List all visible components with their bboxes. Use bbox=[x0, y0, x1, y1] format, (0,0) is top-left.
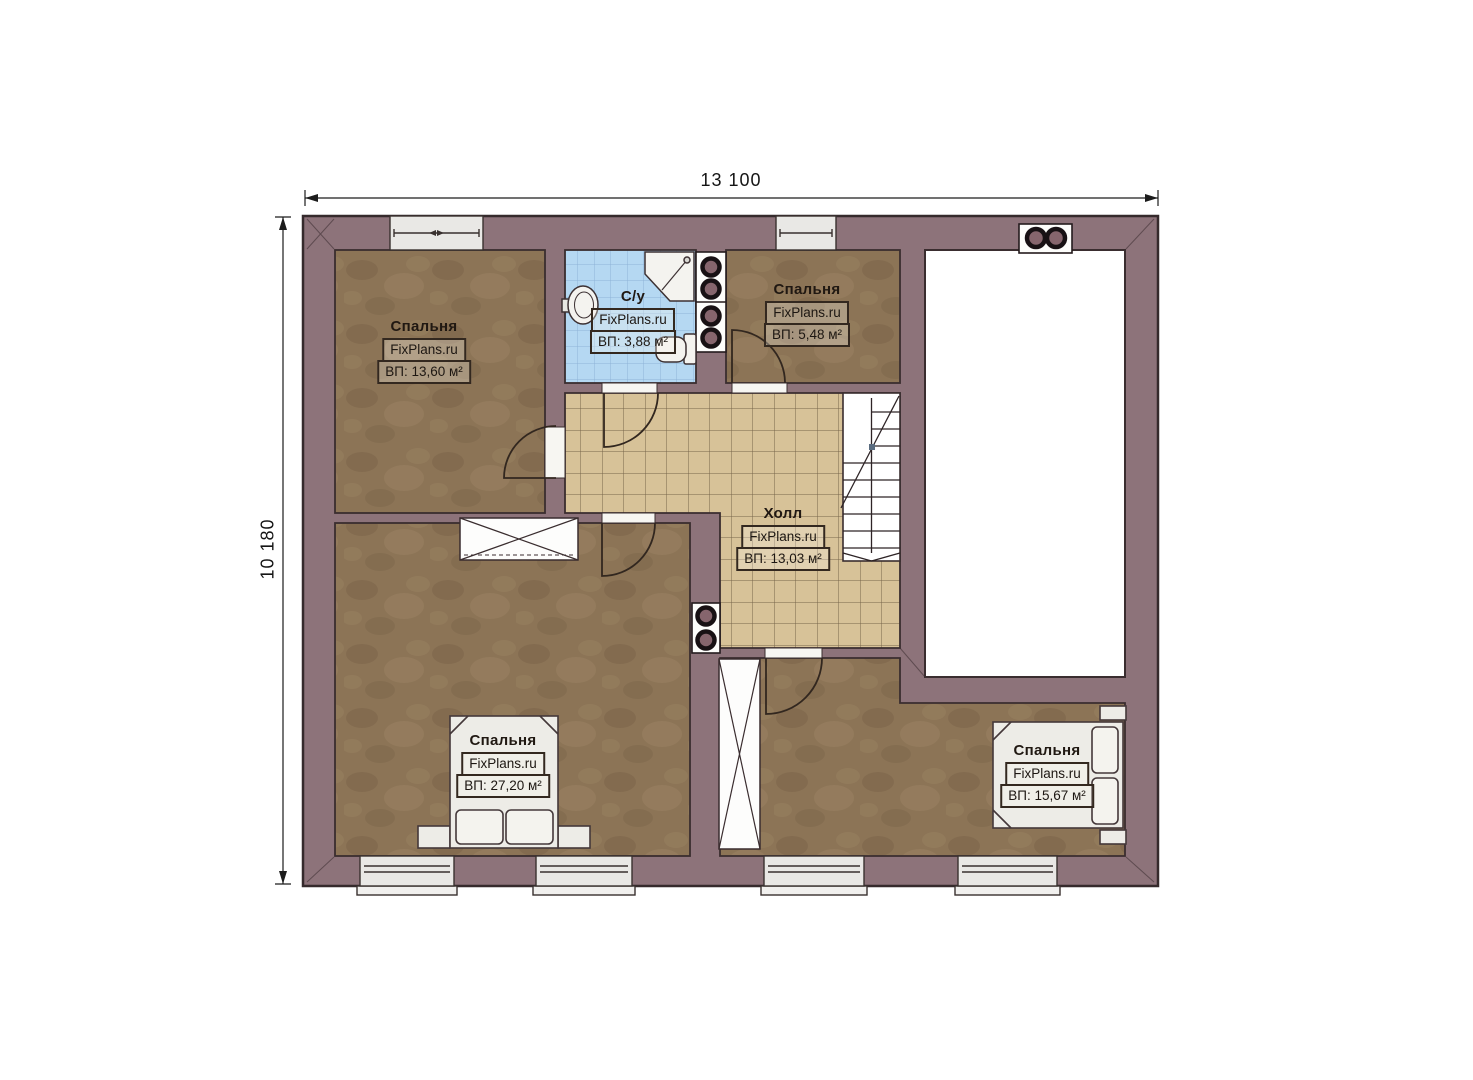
pillow bbox=[456, 810, 503, 844]
nightstand bbox=[558, 826, 590, 848]
nightstand bbox=[1100, 830, 1126, 844]
room-name: Спальня bbox=[377, 318, 471, 335]
nightstand bbox=[418, 826, 450, 848]
vent-stack-hall bbox=[692, 603, 720, 653]
door-opening bbox=[602, 383, 657, 393]
closet-bedroom-bottom-left bbox=[460, 518, 578, 560]
dimension-height-label: 10 180 bbox=[258, 518, 279, 579]
door-opening bbox=[545, 427, 565, 478]
pillow bbox=[1092, 727, 1118, 773]
room-name: Холл bbox=[736, 505, 830, 522]
door-opening bbox=[765, 648, 822, 658]
window bbox=[761, 856, 867, 895]
door-opening bbox=[732, 383, 787, 393]
area-box: ВП: 5,48 м² bbox=[764, 323, 850, 347]
room-name: Спальня bbox=[1000, 742, 1094, 759]
area-box: ВП: 3,88 м² bbox=[590, 330, 676, 354]
room-name: Спальня bbox=[764, 281, 850, 298]
watermark-box: FixPlans.ru bbox=[591, 308, 675, 332]
room-label-hall: Холл FixPlans.ru ВП: 13,03 м² bbox=[736, 505, 830, 571]
room-label-bathroom: С/у FixPlans.ru ВП: 3,88 м² bbox=[590, 288, 676, 354]
wardrobe-bedroom-bottom-right bbox=[719, 659, 760, 849]
area-box: ВП: 27,20 м² bbox=[456, 774, 550, 798]
dimension-width-label: 13 100 bbox=[700, 170, 761, 191]
room-label-bedroom-top-right: Спальня FixPlans.ru ВП: 5,48 м² bbox=[764, 281, 850, 347]
void-room bbox=[925, 250, 1125, 677]
window bbox=[390, 216, 483, 250]
window bbox=[533, 856, 635, 895]
area-box: ВП: 13,03 м² bbox=[736, 547, 830, 571]
window bbox=[955, 856, 1060, 895]
nightstand bbox=[1100, 706, 1126, 720]
room-label-bedroom-bottom-left: Спальня FixPlans.ru ВП: 27,20 м² bbox=[456, 732, 550, 798]
watermark-box: FixPlans.ru bbox=[741, 525, 825, 549]
staircase bbox=[841, 393, 900, 561]
watermark-box: FixPlans.ru bbox=[765, 301, 849, 325]
watermark-box: FixPlans.ru bbox=[1005, 762, 1089, 786]
room-label-bedroom-bottom-right: Спальня FixPlans.ru ВП: 15,67 м² bbox=[1000, 742, 1094, 808]
vent-stack-top-wall bbox=[1019, 224, 1072, 253]
door-opening bbox=[602, 513, 655, 523]
watermark-box: FixPlans.ru bbox=[461, 752, 545, 776]
room-label-bedroom-top-left: Спальня FixPlans.ru ВП: 13,60 м² bbox=[377, 318, 471, 384]
floor-plan: 13 100 10 180 Спальня FixPlans.ru ВП: 13… bbox=[0, 0, 1473, 1080]
window bbox=[776, 216, 836, 250]
vent-stack-bathroom bbox=[696, 252, 726, 352]
pillow bbox=[1092, 778, 1118, 824]
area-box: ВП: 15,67 м² bbox=[1000, 784, 1094, 808]
room-name: С/у bbox=[590, 288, 676, 305]
area-box: ВП: 13,60 м² bbox=[377, 360, 471, 384]
pillow bbox=[506, 810, 553, 844]
window bbox=[357, 856, 457, 895]
room-name: Спальня bbox=[456, 732, 550, 749]
watermark-box: FixPlans.ru bbox=[382, 338, 466, 362]
dimension-width bbox=[305, 190, 1158, 206]
